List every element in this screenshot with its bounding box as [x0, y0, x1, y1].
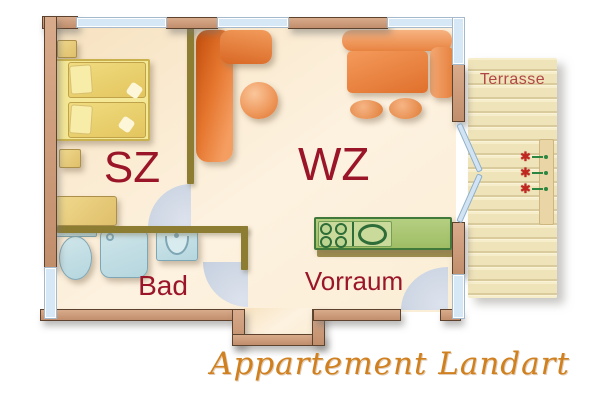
wall-bath-top — [57, 226, 248, 233]
room-label-terrasse: Terrasse — [470, 72, 555, 88]
flower-red-star: ✱ — [520, 150, 531, 163]
stove-burner-icon — [335, 236, 347, 248]
window-left-bath — [45, 268, 56, 318]
room-label-wz: WZ — [298, 141, 368, 187]
wall-bottom-left — [40, 309, 234, 321]
room-label-sz: SZ — [100, 146, 164, 190]
window-right-upper — [453, 18, 464, 64]
coffee-table — [347, 51, 428, 93]
wall-right-lower-post — [452, 222, 465, 275]
nightstand-bottom — [59, 149, 81, 168]
ottoman-left — [350, 100, 383, 119]
flower-icon: ✱ — [520, 150, 548, 163]
pillow-bottom — [69, 104, 93, 134]
flower-red-star: ✱ — [520, 182, 531, 195]
wall-left — [44, 16, 57, 268]
window-living-top-right — [388, 18, 456, 27]
stove-burner-icon — [320, 223, 332, 235]
toilet-bowl — [59, 236, 92, 280]
flower-leaf — [544, 171, 548, 175]
round-pouf — [240, 82, 278, 119]
flower-red-star: ✱ — [520, 166, 531, 179]
flower-leaf — [544, 155, 548, 159]
ottoman-right — [389, 98, 422, 119]
dresser-bench — [55, 196, 117, 226]
kitchen-sink-icon — [358, 224, 387, 245]
flower-icon: ✱ — [520, 166, 548, 179]
wall-top-mid — [166, 17, 218, 29]
nightstand-top — [57, 40, 77, 58]
flower-stem — [532, 156, 543, 158]
wall-bath-right — [241, 226, 248, 270]
flower-leaf — [544, 187, 548, 191]
kitchen-divider-line — [352, 222, 354, 246]
stove-burner-icon — [335, 223, 347, 235]
window-right-lower — [453, 275, 464, 318]
kitchen-shadow — [317, 249, 453, 257]
stove-burner-icon — [320, 236, 332, 248]
l-sofa-short-side — [220, 30, 272, 64]
shower-drain-icon — [106, 233, 114, 241]
room-label-bad: Bad — [132, 272, 194, 300]
flower-stem — [532, 172, 543, 174]
wall-bottom-mid — [313, 309, 401, 321]
wall-bedroom-living — [187, 28, 194, 184]
floorplan-apartment: ✱ ✱ ✱ Terrasse — [0, 0, 600, 400]
flower-stem — [532, 188, 543, 190]
faucet-dot-icon — [174, 233, 179, 238]
pillow-top — [69, 64, 93, 94]
plan-caption: Appartement Landart — [198, 346, 582, 382]
wall-top-right — [288, 17, 388, 29]
entry-vestibule-floor — [244, 308, 314, 335]
room-label-vorraum: Vorraum — [300, 268, 408, 294]
window-bedroom-top — [77, 18, 166, 27]
flower-icon: ✱ — [520, 182, 548, 195]
wall-right-upper-post — [452, 64, 465, 122]
window-living-top-left — [218, 18, 288, 27]
